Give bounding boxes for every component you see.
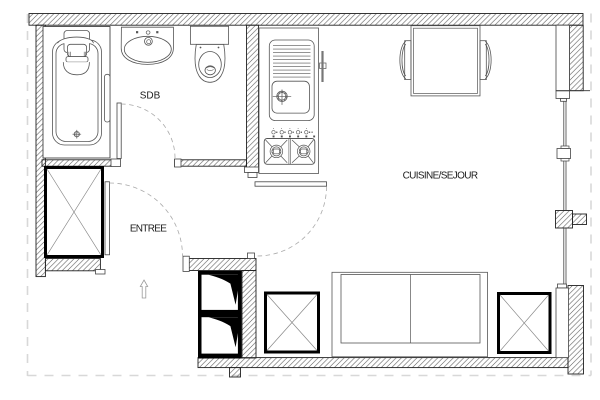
svg-text:CUISINE/SEJOUR: CUISINE/SEJOUR [403, 171, 478, 182]
svg-text:ENTREE: ENTREE [130, 224, 167, 235]
svg-text:SDB: SDB [140, 91, 161, 102]
